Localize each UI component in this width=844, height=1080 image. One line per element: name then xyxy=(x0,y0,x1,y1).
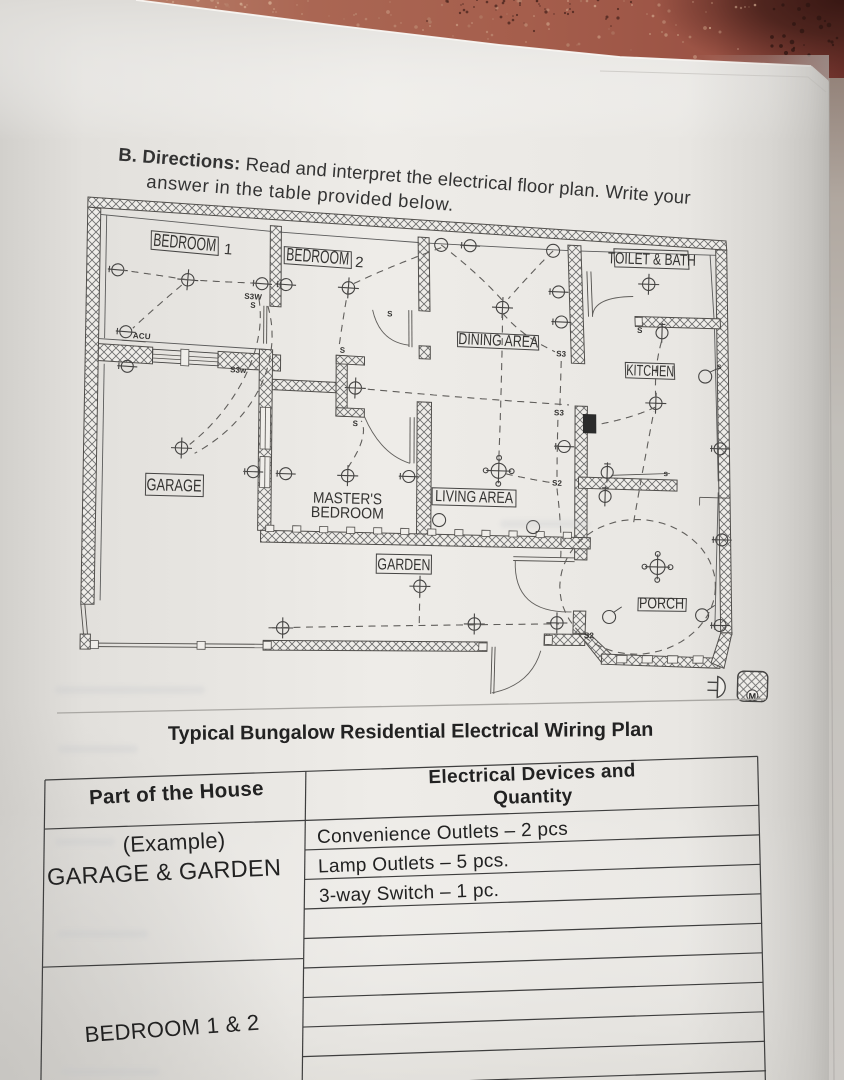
svg-text:S: S xyxy=(352,419,358,428)
svg-text:s: s xyxy=(717,362,722,371)
svg-text:(Example): (Example) xyxy=(122,827,226,857)
svg-text:S2: S2 xyxy=(584,631,595,640)
svg-text:S3w: S3w xyxy=(230,365,247,375)
svg-text:Quantity: Quantity xyxy=(493,786,573,810)
svg-text:DINING AREA: DINING AREA xyxy=(458,331,539,351)
svg-text:2: 2 xyxy=(355,254,365,272)
svg-text:BEDROOM: BEDROOM xyxy=(311,504,384,523)
svg-text:S3: S3 xyxy=(556,349,567,358)
svg-text:Typical Bungalow Residential E: Typical Bungalow Residential Electrical … xyxy=(168,719,653,745)
svg-text:1: 1 xyxy=(223,241,234,259)
svg-text:KITCHEN: KITCHEN xyxy=(626,362,675,380)
svg-text:S: S xyxy=(339,346,345,355)
svg-text:LIVING AREA: LIVING AREA xyxy=(435,488,514,507)
svg-text:S3: S3 xyxy=(554,408,565,417)
svg-text:S2: S2 xyxy=(552,479,563,488)
svg-text:GARAGE: GARAGE xyxy=(146,475,202,496)
svg-text:TOILET & BATH: TOILET & BATH xyxy=(608,250,696,270)
svg-text:S: S xyxy=(637,326,643,335)
svg-text:GARDEN: GARDEN xyxy=(377,556,430,574)
svg-text:PORCH: PORCH xyxy=(639,595,684,613)
svg-text:s: s xyxy=(663,469,668,478)
